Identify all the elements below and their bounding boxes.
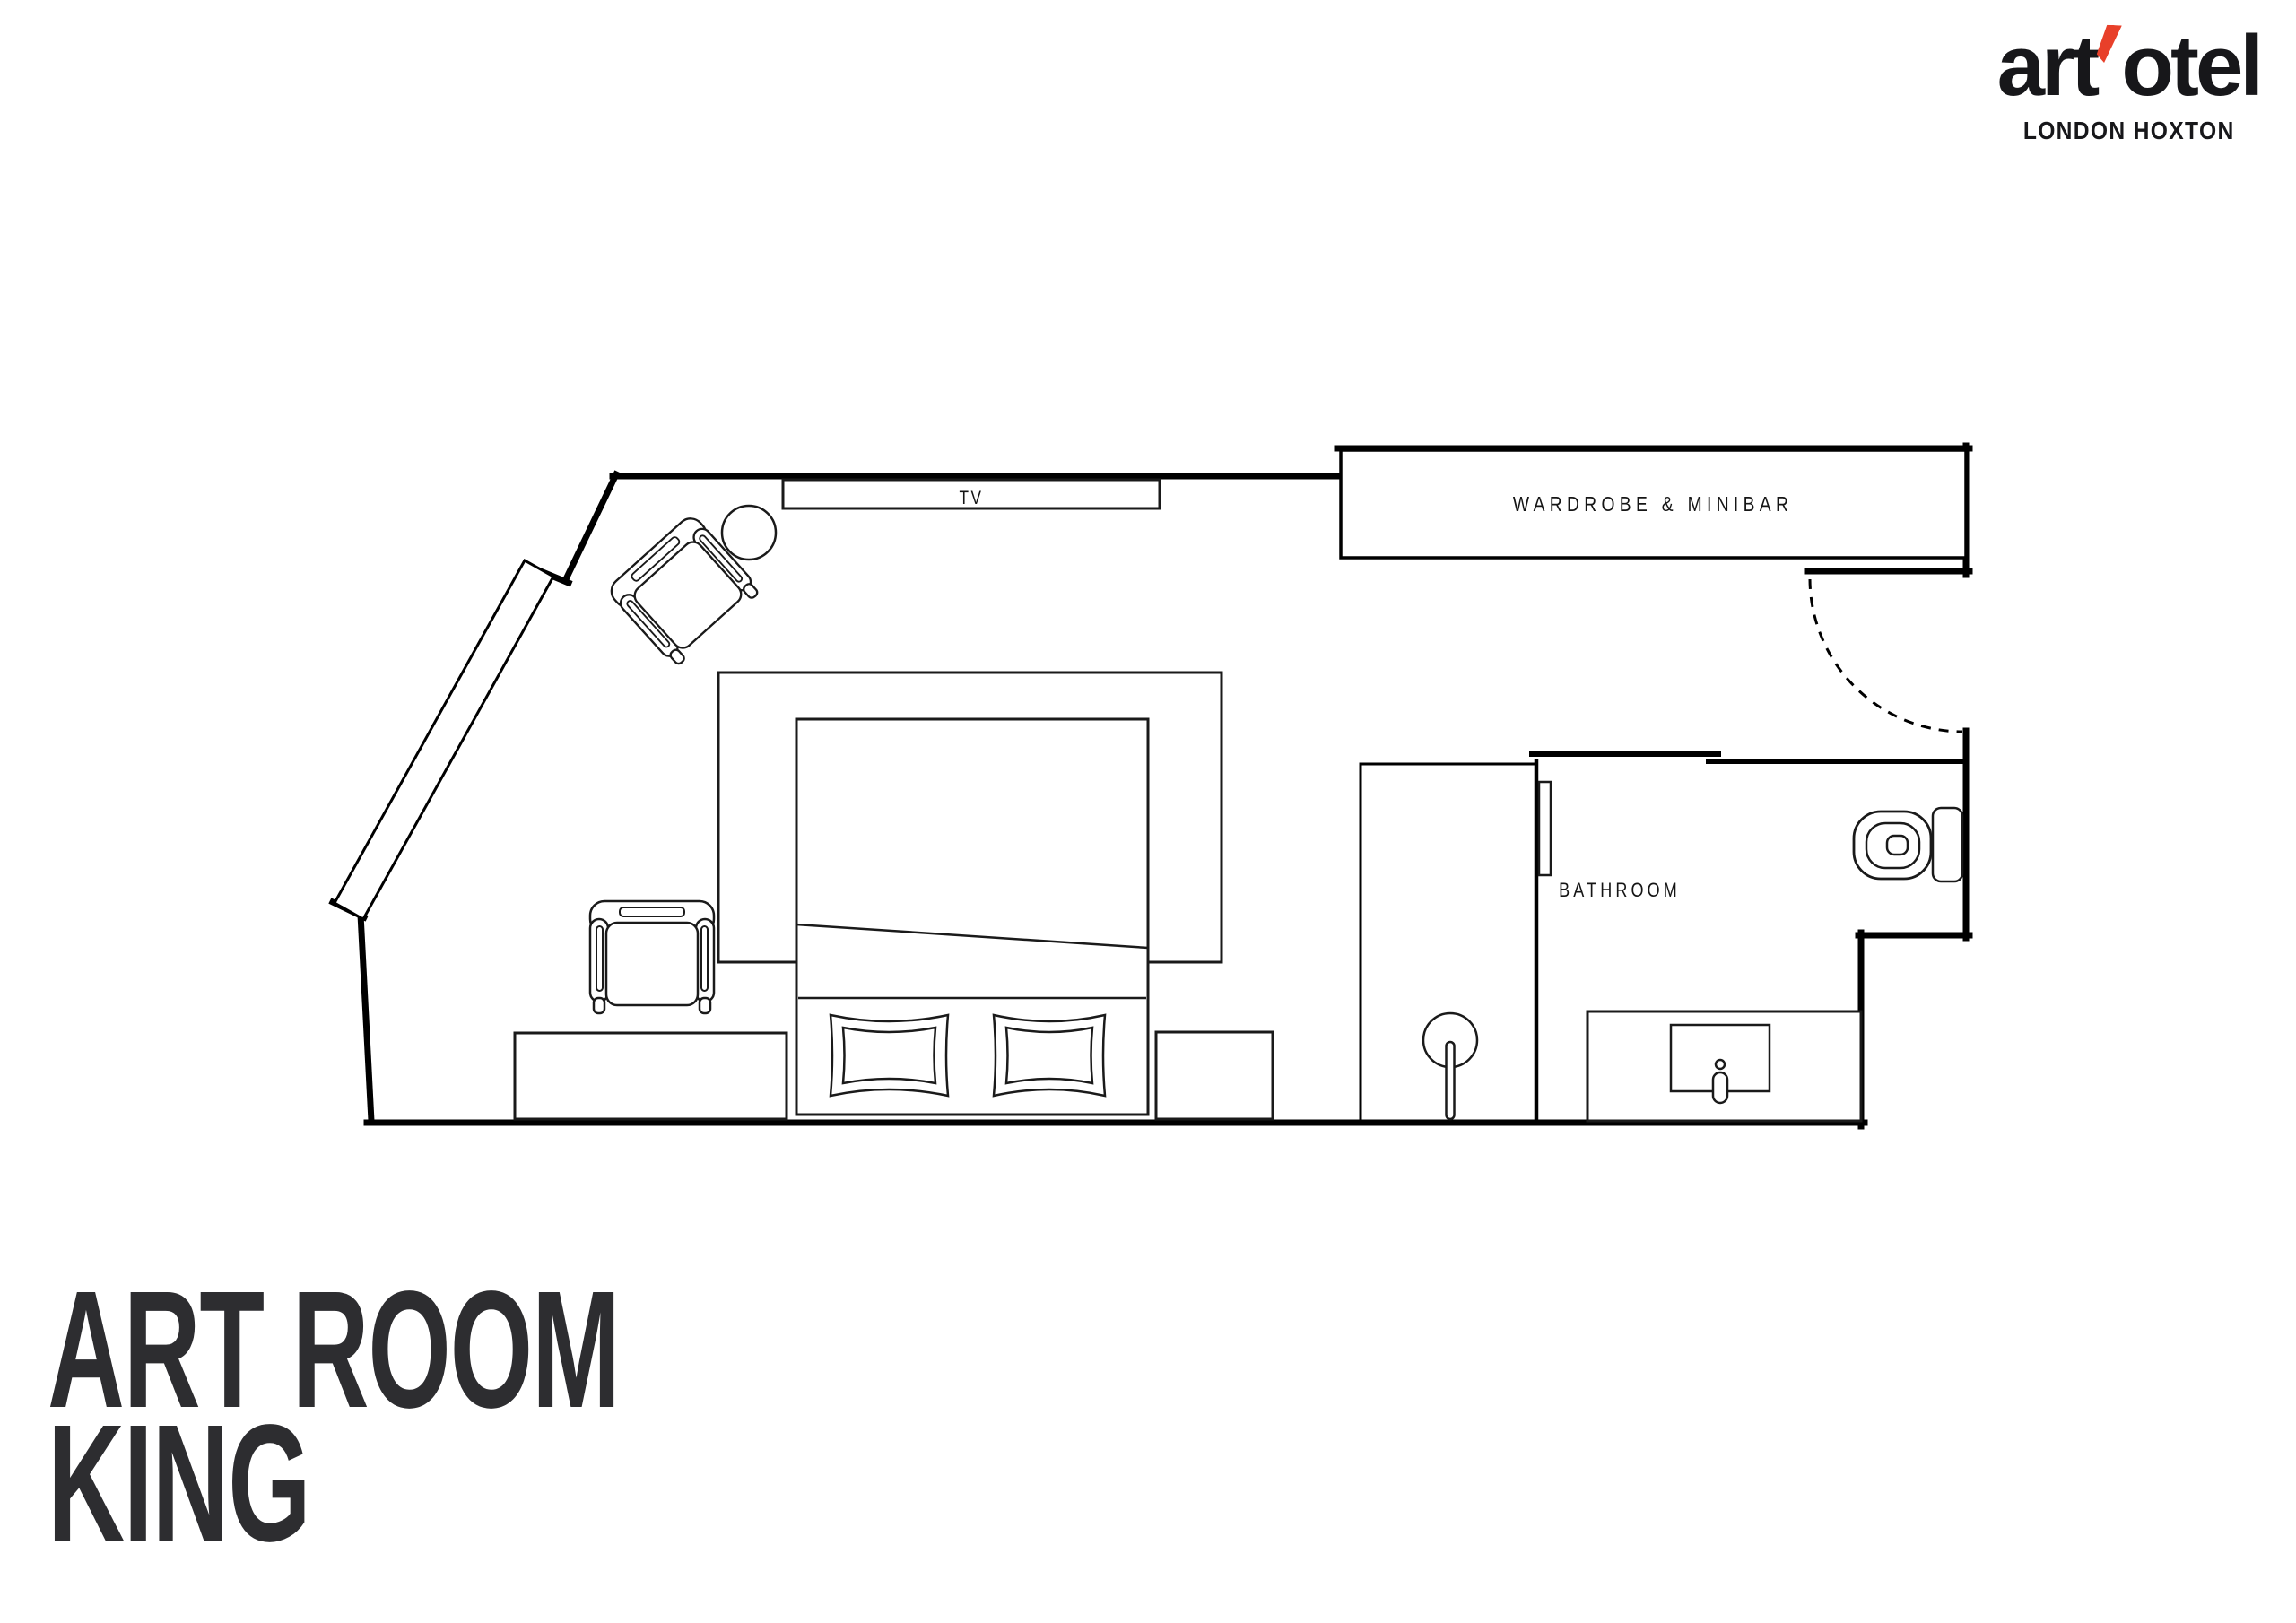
sink-drain: [1713, 1072, 1727, 1103]
credenza: [515, 1033, 787, 1119]
side-table: [722, 506, 776, 560]
room-title: ART ROOM KING: [48, 1284, 620, 1551]
toilet-flush: [1887, 836, 1908, 855]
brand-wordmark: art otel: [1997, 23, 2260, 109]
wardrobe-label: WARDROBE & MINIBAR: [1513, 492, 1793, 516]
floorplan-page: TV: [0, 0, 2296, 1623]
armchair-bottom: [590, 901, 714, 1013]
pillow-right: [994, 1015, 1105, 1096]
vanity: [1587, 1011, 1861, 1121]
nightstand: [1156, 1032, 1273, 1119]
wall-angled-upper: [565, 474, 616, 581]
bathroom-label: BATHROOM: [1559, 880, 1681, 901]
wall-angled-lower: [361, 915, 371, 1121]
shower-head: [1423, 1013, 1477, 1119]
bathroom-door-panel: [1539, 782, 1551, 875]
brand-logo: art otel LONDON HOXTON: [1997, 23, 2260, 145]
toilet-cistern: [1933, 808, 1962, 881]
brand-word-start: art: [1997, 23, 2097, 109]
brand-apostrophe-mark: [2094, 25, 2122, 64]
tv-label: TV: [960, 489, 984, 509]
window: [335, 560, 553, 919]
bed: [796, 719, 1148, 1115]
brand-word-end: otel: [2121, 23, 2260, 109]
sink-faucet-dot: [1716, 1060, 1725, 1069]
pillow-left: [831, 1015, 948, 1096]
door-swing-arc: [1810, 579, 1962, 732]
brand-location: LONDON HOXTON: [2013, 117, 2244, 145]
toilet: [1854, 808, 1962, 881]
